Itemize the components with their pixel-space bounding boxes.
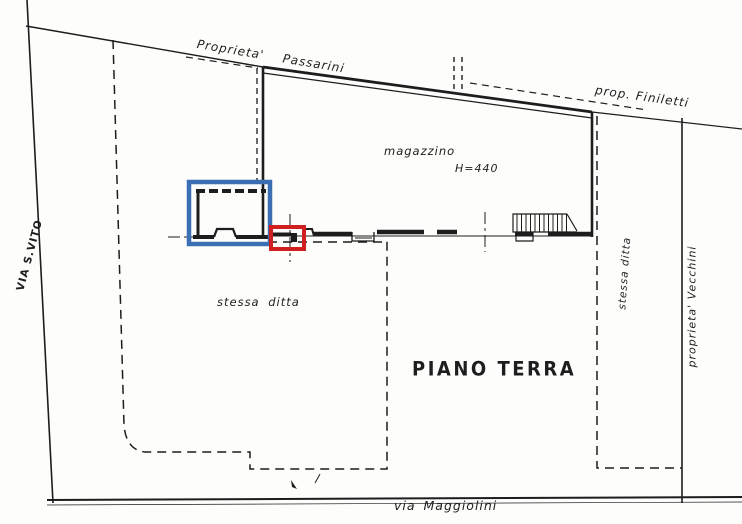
- centerlines: [168, 212, 485, 262]
- finiletti-boundary-line: [592, 112, 742, 129]
- parcel-dashed-boundaries: [113, 40, 682, 469]
- floor-plan-canvas: Proprieta' Passarini prop. Finiletti mag…: [0, 0, 742, 524]
- property-boundaries: [26, 0, 742, 505]
- stair-treads: [517, 214, 567, 232]
- stair-outline: [513, 214, 577, 232]
- label-magazzino: magazzino: [384, 146, 455, 158]
- staircase: [513, 214, 577, 241]
- tick-mark: [315, 474, 320, 483]
- right-parcel-dashed: [597, 116, 682, 468]
- north-wall-inner: [263, 73, 592, 118]
- label-piano-terra-title: PIANO TERRA: [412, 360, 576, 380]
- red-highlight-box[interactable]: [271, 227, 304, 249]
- annex-room: [193, 191, 268, 238]
- label-stessa-ditta-left: stessa ditta: [217, 297, 300, 309]
- scan-marks: [291, 474, 320, 489]
- ink-blot: [291, 480, 297, 489]
- stair-diagonal: [567, 214, 577, 231]
- label-via-maggiolini: via Maggiolini: [394, 500, 497, 513]
- left-parcel-dashed: [113, 40, 387, 469]
- annex-bottom-step: [214, 229, 236, 237]
- label-proprieta-vecchini: proprieta' Vecchini: [687, 242, 698, 372]
- red-area-wall-block: [291, 233, 297, 242]
- label-building-height: H=440: [455, 163, 498, 174]
- north-wall-outer: [263, 67, 592, 112]
